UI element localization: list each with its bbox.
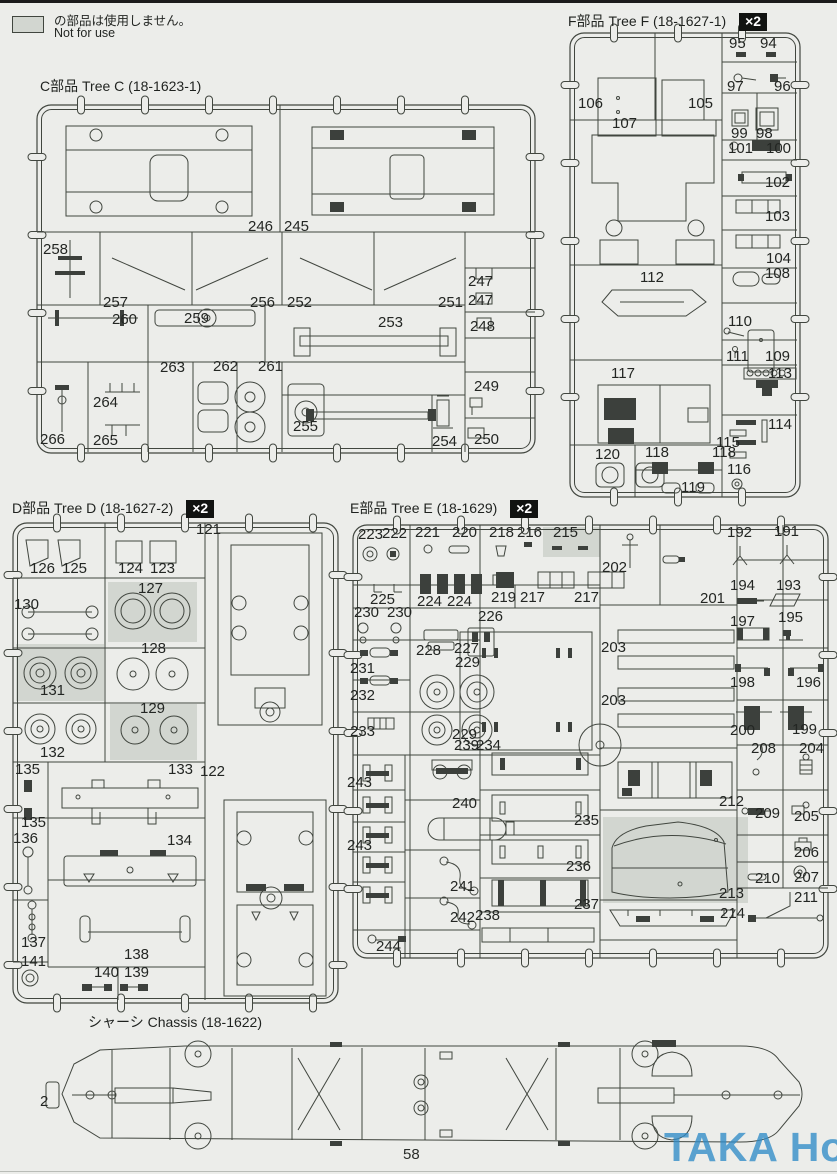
part-number: 203 — [601, 692, 626, 709]
tree-c-title: C部品 Tree C (18-1623-1) — [40, 78, 201, 94]
part-number: 258 — [43, 241, 68, 258]
part-number: 231 — [350, 660, 375, 677]
part-number: 263 — [160, 359, 185, 376]
part-number: 245 — [284, 218, 309, 235]
part-number: 230 — [354, 604, 379, 621]
part-number: 219 — [491, 589, 516, 606]
part-number: 220 — [452, 524, 477, 541]
part-number: 118 — [645, 444, 669, 461]
part-number: 235 — [574, 812, 599, 829]
part-number: 111 — [726, 348, 749, 365]
part-number: 138 — [124, 946, 149, 963]
part-number: 113 — [768, 365, 792, 382]
tree-c-header: C部品 Tree C (18-1623-1) — [40, 76, 201, 96]
part-number: 137 — [21, 934, 46, 951]
part-number: 126 — [30, 560, 55, 577]
part-number: 247 — [468, 273, 493, 290]
part-number: 228 — [416, 642, 441, 659]
part-number: 136 — [13, 830, 38, 847]
part-number: 103 — [765, 208, 790, 225]
tree-f-multiplier-badge: ×2 — [739, 13, 767, 31]
part-number: 95 — [729, 35, 746, 52]
part-number: 134 — [167, 832, 192, 849]
part-number: 105 — [688, 95, 713, 112]
part-number: 226 — [478, 608, 503, 625]
part-number: 230 — [387, 604, 412, 621]
part-number: 241 — [450, 878, 475, 895]
part-number: 201 — [700, 590, 725, 607]
part-number: 217 — [574, 589, 599, 606]
part-number: 259 — [184, 310, 209, 327]
part-number: 260 — [112, 311, 137, 328]
part-number: 217 — [520, 589, 545, 606]
part-number: 254 — [432, 433, 457, 450]
part-number: 255 — [293, 418, 318, 435]
part-number: 262 — [213, 358, 238, 375]
part-number: 193 — [776, 577, 801, 594]
part-number: 133 — [168, 761, 193, 778]
part-number: 256 — [250, 294, 275, 311]
part-number: 109 — [765, 348, 790, 365]
tree-d-title: D部品 Tree D (18-1627-2) — [12, 500, 173, 516]
part-number: 248 — [470, 318, 495, 335]
part-number: 121 — [196, 521, 221, 538]
part-number: 106 — [578, 95, 603, 112]
part-number: 238 — [475, 907, 500, 924]
part-number: 130 — [14, 596, 39, 613]
part-number: 97 — [727, 78, 744, 95]
part-number: 129 — [140, 700, 165, 717]
part-number: 216 — [517, 524, 542, 541]
part-number: 108 — [765, 265, 790, 282]
part-number: 237 — [574, 896, 599, 913]
chassis-title: シャーシ Chassis (18-1622) — [88, 1014, 262, 1030]
part-number: 128 — [141, 640, 166, 657]
part-number: 224 — [447, 593, 472, 610]
part-number: 252 — [287, 294, 312, 311]
part-number: 118 — [712, 444, 736, 461]
tree-d-header: D部品 Tree D (18-1627-2) ×2 — [12, 498, 214, 518]
part-number: 200 — [730, 722, 755, 739]
part-number: 96 — [774, 78, 791, 95]
part-number: 101 — [728, 140, 753, 157]
part-number: 251 — [438, 294, 463, 311]
part-number: 232 — [350, 687, 375, 704]
part-number: 102 — [765, 174, 790, 191]
part-number: 120 — [595, 446, 620, 463]
part-number: 208 — [751, 740, 776, 757]
part-number: 114 — [768, 416, 792, 433]
part-number: 124 — [118, 560, 143, 577]
part-number: 199 — [792, 721, 817, 738]
part-number: 202 — [602, 559, 627, 576]
part-number: 139 — [124, 964, 149, 981]
part-number: 206 — [794, 844, 819, 861]
part-number: 218 — [489, 524, 514, 541]
part-number: 195 — [778, 609, 803, 626]
part-number: 125 — [62, 560, 87, 577]
part-number: 209 — [755, 805, 780, 822]
part-number: 135 — [15, 761, 40, 778]
part-number: 233 — [350, 723, 375, 740]
part-number: 214 — [720, 905, 745, 922]
scan-edge-bottom — [0, 1171, 837, 1172]
part-number: 191 — [774, 523, 799, 540]
part-number: 127 — [138, 580, 163, 597]
part-number: 244 — [376, 938, 401, 955]
part-number: 119 — [681, 479, 705, 496]
part-number: 242 — [450, 909, 475, 926]
part-number: 215 — [553, 524, 578, 541]
legend-text-en: Not for use — [54, 26, 115, 40]
part-number: 211 — [794, 889, 818, 906]
part-number: 236 — [566, 858, 591, 875]
tree-f-header: F部品 Tree F (18-1627-1) ×2 — [568, 11, 767, 31]
part-number: 212 — [719, 793, 744, 810]
part-number: 205 — [794, 808, 819, 825]
part-number: 100 — [766, 140, 791, 157]
part-number: 110 — [728, 313, 752, 330]
part-number: 261 — [258, 358, 283, 375]
taka-hobby-watermark: TAKA Hobby — [664, 1124, 837, 1171]
part-number: 123 — [150, 560, 175, 577]
part-number: 204 — [799, 740, 824, 757]
part-number: 112 — [640, 269, 664, 286]
part-number: 135 — [21, 814, 46, 831]
part-number: 223 — [358, 526, 383, 543]
part-number: 198 — [730, 674, 755, 691]
part-number: 203 — [601, 639, 626, 656]
part-number: 234 — [476, 737, 501, 754]
gray-swatch — [12, 16, 44, 33]
part-number: 266 — [40, 431, 65, 448]
part-number: 249 — [474, 378, 499, 395]
part-number: 229 — [455, 654, 480, 671]
part-number: 131 — [40, 682, 65, 699]
parts-diagram: 2462452582572562522512472472482602592532… — [0, 0, 837, 1174]
part-number: 117 — [611, 365, 635, 382]
part-number: 265 — [93, 432, 118, 449]
part-number: 207 — [794, 869, 819, 886]
tree-d-multiplier-badge: ×2 — [186, 500, 214, 518]
part-number: 243 — [347, 774, 372, 791]
part-number: 221 — [415, 524, 440, 541]
part-number: 253 — [378, 314, 403, 331]
part-number: 224 — [417, 593, 442, 610]
tree-e-multiplier-badge: ×2 — [510, 500, 538, 518]
part-number: 222 — [382, 525, 407, 542]
part-number: 210 — [755, 870, 780, 887]
part-number: 107 — [612, 115, 637, 132]
part-number: 141 — [21, 953, 46, 970]
part-number: 243 — [347, 837, 372, 854]
part-number: 122 — [200, 763, 225, 780]
part-number: 264 — [93, 394, 118, 411]
part-number: 132 — [40, 744, 65, 761]
part-number: 2 — [40, 1093, 48, 1110]
page-number: 58 — [403, 1146, 420, 1163]
instruction-sheet-page: { "page": {"number": "58", "watermark": … — [0, 0, 837, 1174]
part-number: 94 — [760, 35, 777, 52]
tree-e-header: E部品 Tree E (18-1629) ×2 — [350, 498, 538, 518]
part-number: 192 — [727, 524, 752, 541]
part-number: 116 — [727, 461, 751, 478]
part-number: 213 — [719, 885, 744, 902]
chassis-header: シャーシ Chassis (18-1622) — [88, 1012, 262, 1032]
tree-e-title: E部品 Tree E (18-1629) — [350, 500, 497, 516]
part-number: 194 — [730, 577, 755, 594]
part-number: 246 — [248, 218, 273, 235]
part-number: 196 — [796, 674, 821, 691]
part-number: 140 — [94, 964, 119, 981]
part-number: 247 — [468, 292, 493, 309]
part-number: 197 — [730, 613, 755, 630]
part-number: 240 — [452, 795, 477, 812]
part-number: 257 — [103, 294, 128, 311]
tree-f-title: F部品 Tree F (18-1627-1) — [568, 13, 726, 29]
part-number: 250 — [474, 431, 499, 448]
